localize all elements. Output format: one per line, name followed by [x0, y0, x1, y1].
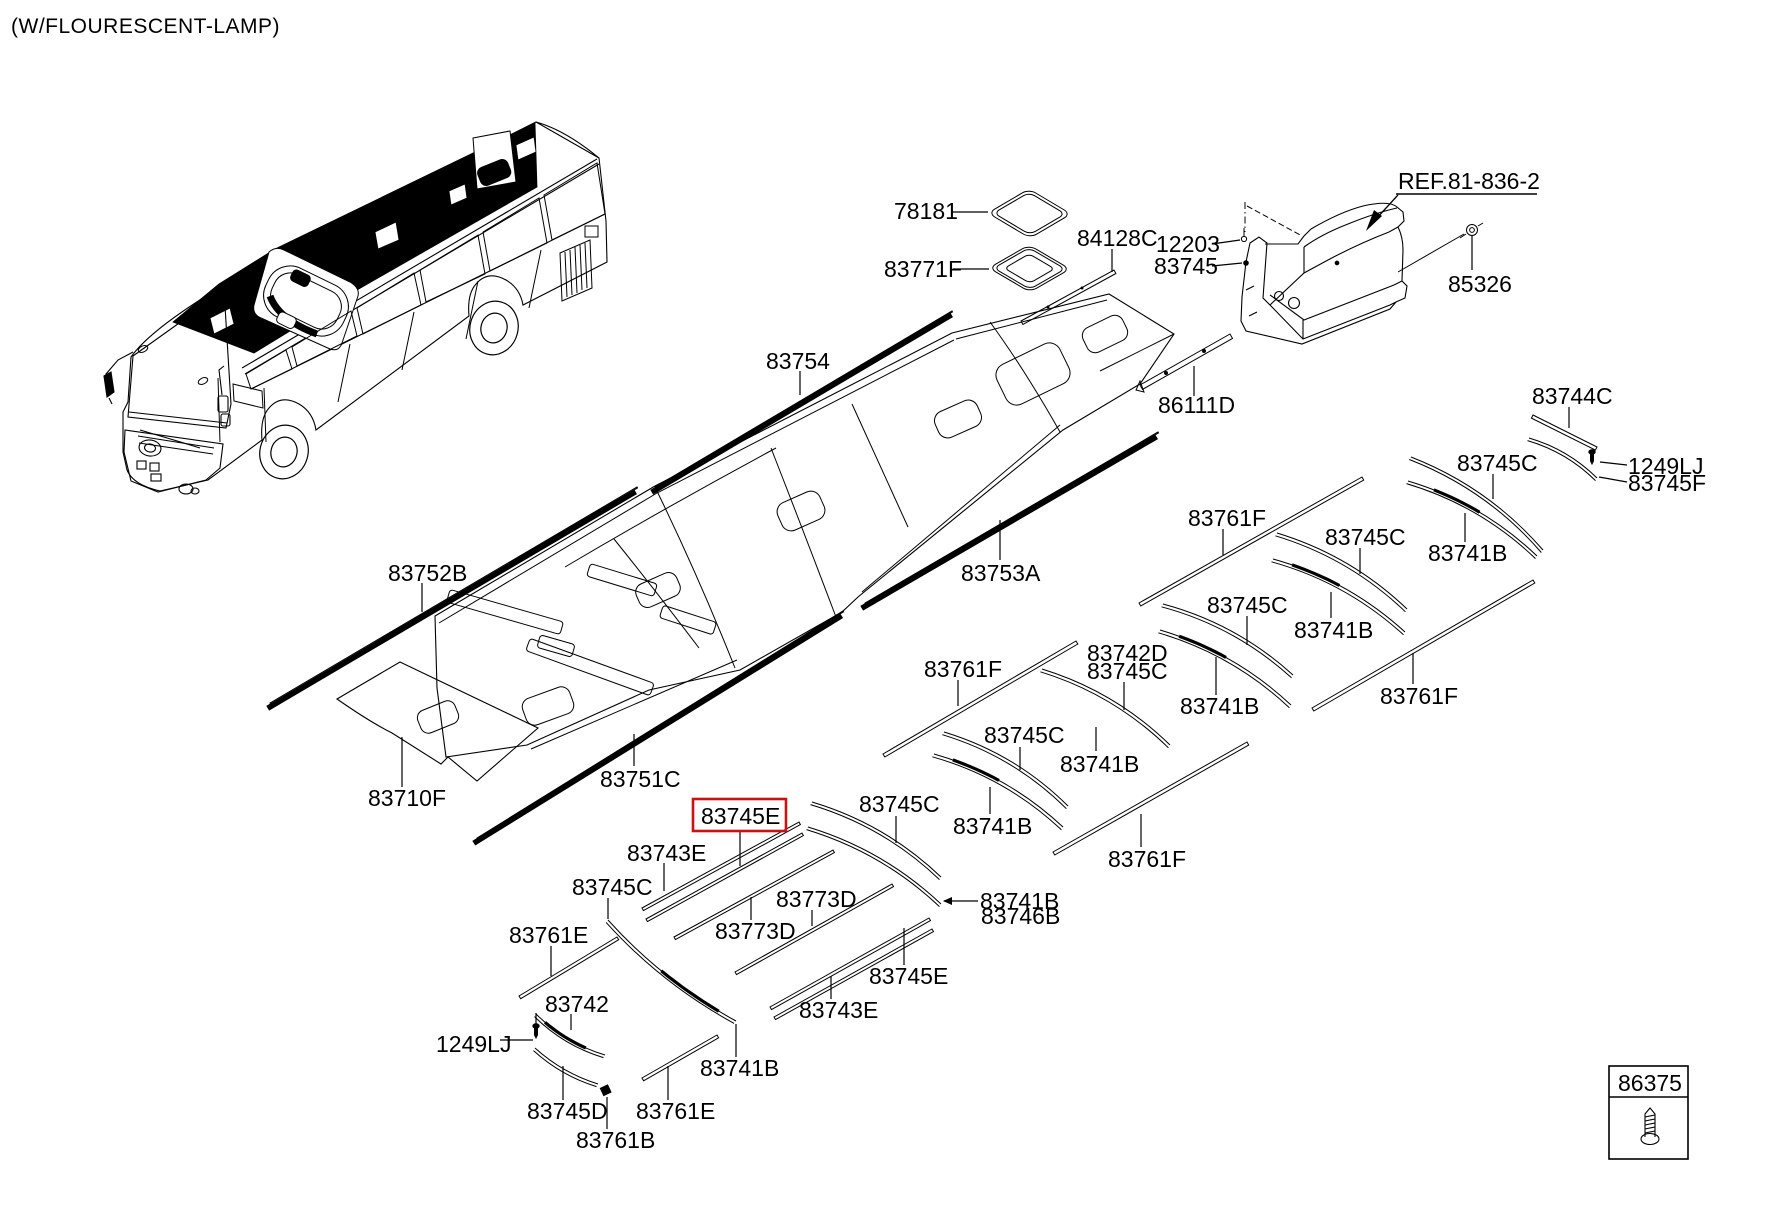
- svg-text:83745C: 83745C: [1457, 450, 1538, 476]
- svg-text:83771F: 83771F: [884, 256, 962, 282]
- svg-text:83761F: 83761F: [1108, 846, 1186, 872]
- svg-text:83761E: 83761E: [509, 922, 588, 948]
- svg-text:78181: 78181: [894, 198, 958, 224]
- svg-text:83745C: 83745C: [859, 791, 940, 817]
- svg-text:83745E: 83745E: [701, 803, 780, 829]
- svg-text:83751C: 83751C: [600, 766, 681, 792]
- svg-text:83741B: 83741B: [700, 1055, 779, 1081]
- svg-text:83761F: 83761F: [1188, 505, 1266, 531]
- svg-text:83745D: 83745D: [527, 1098, 608, 1124]
- svg-text:83754: 83754: [766, 348, 830, 374]
- svg-text:83773D: 83773D: [715, 918, 796, 944]
- svg-text:1249LJ: 1249LJ: [436, 1031, 511, 1057]
- svg-text:83745C: 83745C: [1207, 592, 1288, 618]
- svg-text:(W/FLOURESCENT-LAMP): (W/FLOURESCENT-LAMP): [11, 15, 280, 38]
- svg-text:83741B: 83741B: [953, 813, 1032, 839]
- svg-text:83752B: 83752B: [388, 560, 467, 586]
- svg-text:83745E: 83745E: [869, 963, 948, 989]
- svg-text:83753A: 83753A: [961, 560, 1041, 586]
- svg-text:83761B: 83761B: [576, 1127, 655, 1153]
- svg-text:83741B: 83741B: [1294, 617, 1373, 643]
- svg-text:83745C: 83745C: [984, 722, 1065, 748]
- svg-text:83745C: 83745C: [572, 874, 653, 900]
- svg-text:83741B: 83741B: [1428, 540, 1507, 566]
- svg-text:83744C: 83744C: [1532, 383, 1613, 409]
- svg-text:83742: 83742: [545, 991, 609, 1017]
- svg-text:83745: 83745: [1154, 253, 1218, 279]
- svg-text:83745C: 83745C: [1087, 658, 1168, 684]
- svg-text:83743E: 83743E: [799, 997, 878, 1023]
- svg-text:REF.81-836-2: REF.81-836-2: [1398, 168, 1540, 194]
- svg-text:83746B: 83746B: [981, 903, 1060, 929]
- svg-text:83710F: 83710F: [368, 785, 446, 811]
- svg-text:83761F: 83761F: [924, 656, 1002, 682]
- svg-text:83761F: 83761F: [1380, 683, 1458, 709]
- svg-text:83741B: 83741B: [1060, 751, 1139, 777]
- svg-text:83743E: 83743E: [627, 840, 706, 866]
- svg-text:83773D: 83773D: [776, 886, 857, 912]
- svg-text:83741B: 83741B: [1180, 693, 1259, 719]
- svg-text:84128C: 84128C: [1077, 225, 1158, 251]
- svg-text:86375: 86375: [1618, 1070, 1682, 1096]
- svg-text:83745F: 83745F: [1628, 470, 1706, 496]
- svg-text:85326: 85326: [1448, 271, 1512, 297]
- svg-text:83745C: 83745C: [1325, 524, 1406, 550]
- svg-text:86111D: 86111D: [1158, 392, 1235, 418]
- svg-text:83761E: 83761E: [636, 1098, 715, 1124]
